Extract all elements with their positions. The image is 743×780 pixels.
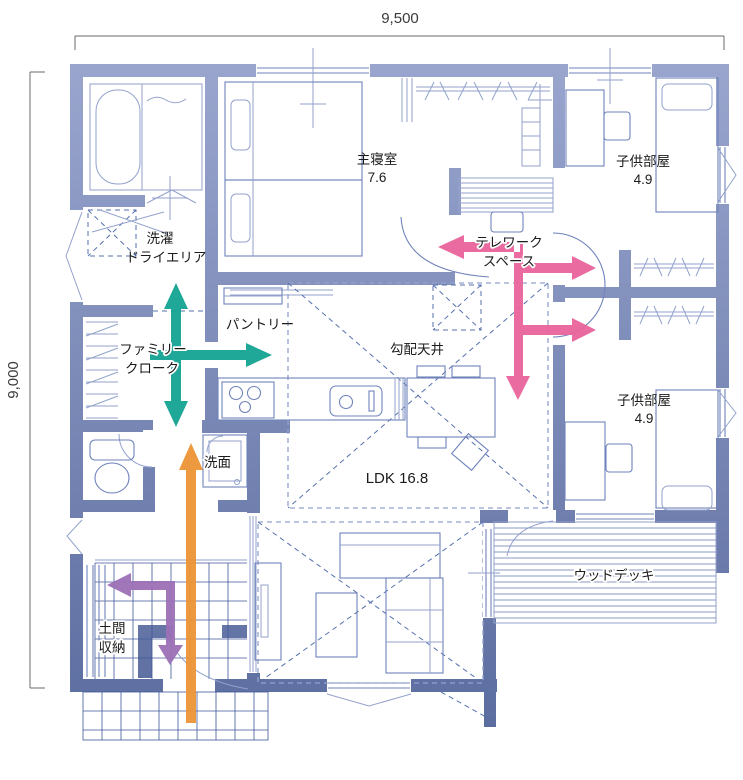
chair bbox=[491, 212, 523, 232]
bath-folding-door bbox=[145, 176, 203, 220]
label-kids1-area: 4.9 bbox=[634, 172, 653, 187]
toilet-door bbox=[119, 430, 155, 467]
dimension-left-label: 9,000 bbox=[5, 361, 22, 399]
kitchen-counter bbox=[218, 378, 405, 420]
stove bbox=[222, 382, 274, 418]
kids-room-1-furniture bbox=[566, 78, 718, 212]
master-bedroom-furniture bbox=[225, 78, 550, 256]
window-hall-left bbox=[67, 518, 83, 554]
dimension-top-label: 9,500 bbox=[381, 10, 419, 27]
telework-space bbox=[401, 84, 605, 337]
label-telework-1: テレワーク bbox=[475, 235, 543, 250]
label-master-area: 7.6 bbox=[368, 170, 387, 185]
window-kids1-top bbox=[568, 48, 652, 104]
window-kids2-bottom bbox=[575, 510, 655, 523]
toilet-room bbox=[90, 440, 134, 493]
dining-set bbox=[407, 366, 495, 470]
deck-window bbox=[468, 528, 500, 618]
floor-plan-page: 9,500 9,000 bbox=[0, 0, 743, 780]
toilet-bowl bbox=[95, 463, 129, 493]
label-telework-2: スペース bbox=[483, 254, 535, 269]
porch-tiles bbox=[83, 692, 268, 740]
chair bbox=[452, 366, 480, 377]
window-kids1-right bbox=[716, 146, 736, 204]
sofa bbox=[386, 578, 443, 673]
entrance-flow-arrow bbox=[179, 443, 203, 723]
label-wood-deck: ウッドデッキ bbox=[574, 567, 655, 583]
label-ldk: LDK 16.8 bbox=[366, 470, 429, 487]
bed bbox=[656, 78, 718, 212]
window-kids2-right bbox=[716, 388, 736, 438]
label-pantry: パントリー bbox=[226, 317, 294, 332]
dimension-left: 9,000 bbox=[5, 72, 45, 688]
label-sloped-ceiling: 勾配天井 bbox=[390, 342, 444, 357]
flow-arrows bbox=[107, 235, 596, 723]
kids-room-2-furniture bbox=[565, 390, 718, 510]
chair bbox=[418, 437, 446, 448]
bathroom bbox=[90, 84, 202, 190]
coffee-table bbox=[316, 593, 357, 657]
chair bbox=[417, 366, 445, 377]
window-laundry-left bbox=[66, 210, 83, 302]
chair bbox=[606, 444, 632, 472]
label-kids-room-1: 子供部屋 bbox=[616, 154, 670, 169]
label-family-closet-1: ファミリー bbox=[119, 342, 187, 357]
desk bbox=[565, 422, 605, 500]
sofa bbox=[340, 533, 440, 578]
family-closet-shelves bbox=[86, 322, 118, 418]
living-furniture bbox=[255, 521, 553, 673]
dimension-top: 9,500 bbox=[75, 10, 724, 50]
bed bbox=[225, 180, 362, 256]
desk bbox=[566, 90, 604, 166]
deck-door-arc bbox=[507, 521, 553, 556]
bathtub bbox=[96, 90, 140, 184]
label-laundry-1: 洗濯 bbox=[147, 231, 174, 246]
label-master-bedroom: 主寝室 bbox=[357, 151, 398, 167]
toilet-tank bbox=[90, 440, 134, 460]
label-doma-2: 収納 bbox=[99, 640, 126, 655]
closet-rod bbox=[416, 87, 550, 91]
floor-plan-drawing: 9,500 9,000 bbox=[0, 0, 743, 780]
bed bbox=[225, 82, 362, 180]
chair bbox=[452, 434, 489, 471]
label-family-closet-2: クローク bbox=[125, 361, 179, 376]
label-doma-1: 土間 bbox=[99, 621, 126, 636]
label-kids-room-2: 子供部屋 bbox=[617, 393, 671, 408]
window-master-top bbox=[256, 48, 370, 128]
hall-ldk-partition-door bbox=[247, 515, 260, 673]
chair bbox=[604, 112, 630, 140]
dining-table bbox=[407, 378, 495, 437]
label-washroom: 洗面 bbox=[204, 455, 231, 470]
label-laundry-2: ドライエリア bbox=[126, 250, 207, 265]
label-kids2-area: 4.9 bbox=[635, 411, 654, 426]
